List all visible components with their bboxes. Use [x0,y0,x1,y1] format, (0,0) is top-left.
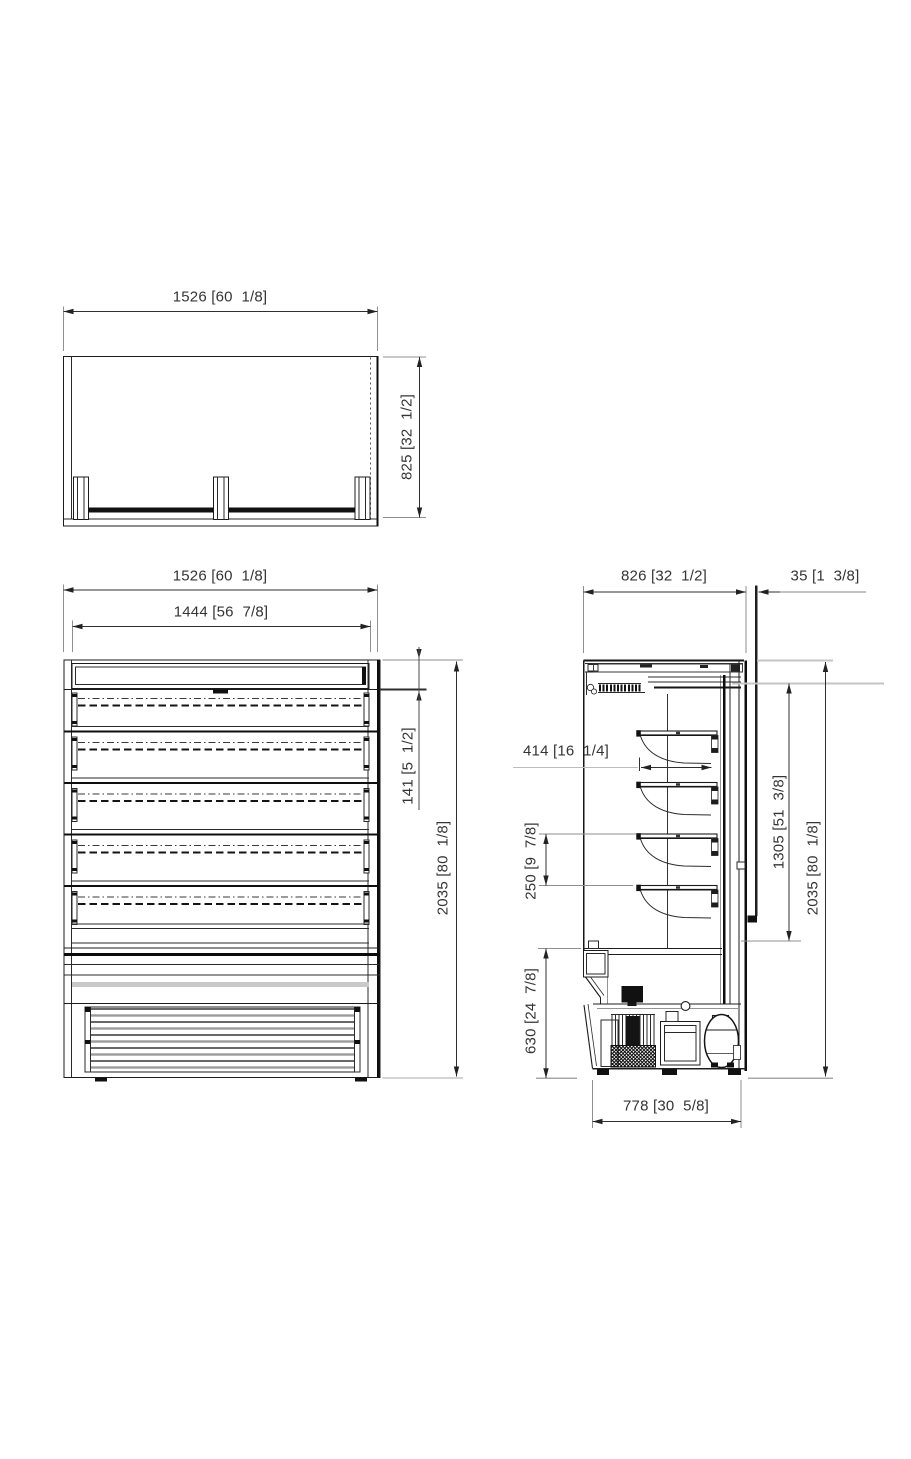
front-louver-grille [85,1007,360,1072]
dim-front-interior-width: 1444 [56 7/8] [174,605,269,620]
dim-side-shelf-depth: 414 [16 1/4] [523,744,609,759]
side-shelves [636,730,718,918]
side-view [513,586,884,1129]
side-canopy [584,661,745,953]
dim-side-base-height: 630 [24 7/8] [524,968,539,1054]
compressor [705,1015,741,1068]
front-view [64,585,464,1082]
dim-side-depth: 826 [32 1/2] [621,569,707,584]
side-machine-compartment [584,1002,746,1075]
dim-front-overall-width: 1526 [60 1/8] [173,569,268,584]
dim-front-canopy-height: 141 [5 1/2] [401,727,416,804]
dim-plan-depth: 825 [32 1/2] [400,394,415,480]
dim-plan-width: 1526 [60 1/8] [173,290,268,305]
plan-view [64,307,427,527]
drawing-linework [0,0,911,1459]
dim-side-shelf-spacing: 250 [9 7/8] [524,822,539,899]
dim-side-base-depth: 778 [30 5/8] [623,1099,709,1114]
evaporator-coil [599,685,641,692]
dim-side-opening-height: 1305 [51 3/8] [772,775,787,870]
technical-drawing-canvas: 1526 [60 1/8] 825 [32 1/2] 1526 [60 1/8]… [0,0,911,1459]
side-back-wall [721,661,746,1072]
dim-side-rear-gap: 35 [1 3/8] [791,569,860,584]
side-base-front [584,941,723,1006]
dim-front-overall-height: 2035 [80 1/8] [436,821,451,916]
dim-side-overall-height: 2035 [80 1/8] [806,821,821,916]
